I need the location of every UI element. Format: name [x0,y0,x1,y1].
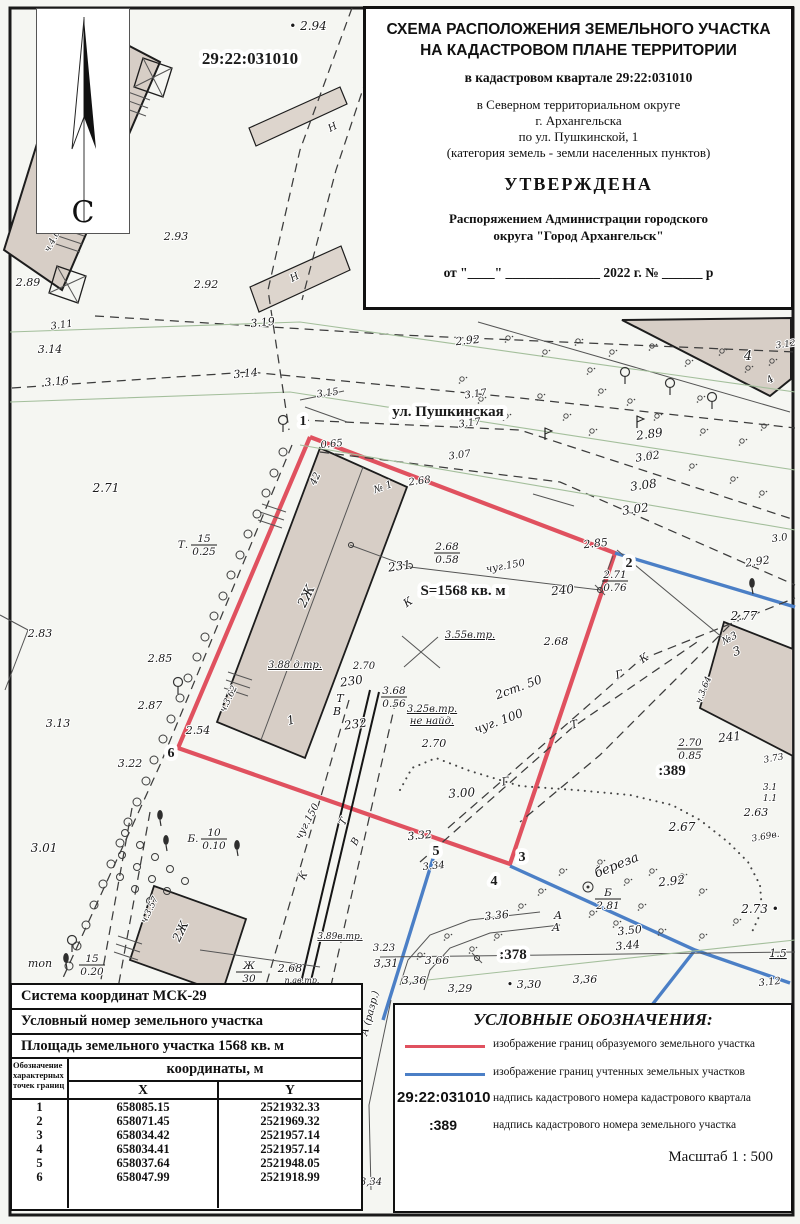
map-label: 2.70 [352,661,376,672]
bush-dot [512,336,514,338]
legend-quarter-number: 29:22:031010 [397,1089,489,1106]
bush-dot [620,921,622,923]
date-line: от "____" ______________ 2022 г. № _____… [366,265,791,281]
bush-dot [776,359,778,361]
map-label: 3.01 [31,841,58,855]
map-label: 2.77 [730,609,758,623]
fraction-bottom: 0.85 [678,750,702,762]
bush-dot [706,934,708,936]
fraction-top: 3.68 [382,685,406,697]
y-value: 2521957.14 [219,1128,361,1142]
map-label: • 3,30 [507,978,541,991]
y-header: Y [219,1082,361,1098]
point-number: 5 [12,1156,67,1170]
bush-dot [697,401,699,403]
map-label: :389 [658,763,686,779]
bush-dot [726,349,728,351]
fraction-bottom: 0.58 [435,554,459,566]
map-label: 1.5 [769,947,787,960]
bush-dot [616,350,618,352]
bush-dot [740,919,742,921]
fraction-prefix: Т. [178,539,188,551]
fraction-bottom: 0.76 [603,582,627,594]
map-label: 3.50 [617,923,643,938]
bush-dot [570,414,572,416]
map-label: 5 [433,844,440,859]
y-value: 2521918.99 [219,1170,361,1184]
bush-dot [505,341,507,343]
map-label: 2.93 [163,230,189,243]
bush-dot [538,894,540,896]
bush-dot [686,874,688,876]
xy-header-row: X Y [69,1082,361,1100]
legend-quarter-text: надпись кадастрового номера кадастрового… [493,1092,785,1104]
fraction-top: 10 [207,827,221,839]
bush-dot [656,344,658,346]
map-label: 3.25в.тр. [407,704,457,715]
point-number: 3 [12,1128,67,1142]
bush-dot [575,344,577,346]
bush-dot [658,934,660,936]
map-label: 3.22 [118,757,143,770]
fraction-top: 2.70 [677,737,702,749]
cadastral-scheme-page: • 2.9429:22:03101044442 ДЖч.4.002.892.93… [0,0,800,1224]
map-label: ул. Пушкинская [392,404,504,420]
bush-dot [739,444,741,446]
map-label: 3,31 [374,957,399,970]
bush-dot [587,373,589,375]
map-label: 3.66 [425,954,450,967]
bush-dot [609,355,611,357]
map-label: 4 [743,349,752,364]
map-label: 3,29 [448,982,473,995]
map-label: 241 [716,729,741,745]
bush-dot [699,939,701,941]
map-label: 3,34 [360,1177,382,1188]
bush-dot [537,399,539,401]
bush-dot [605,389,607,391]
map-label: 2.89 [15,276,41,289]
bush-dot [661,414,663,416]
map-label: В [332,705,341,718]
title-block: СХЕМА РАСПОЛОЖЕНИЯ ЗЕМЕЛЬНОГО УЧАСТКА НА… [363,6,794,310]
map-label: 2.85 [147,652,173,665]
map-label: 0.65 [320,438,343,451]
fraction-top: 2.71 [602,569,626,581]
x-value: 658071.45 [69,1114,217,1128]
map-label: 1.1 [763,794,777,804]
order-text: Распоряжением Администрации городского о… [366,210,791,244]
map-label: 2.83 [27,627,53,640]
map-label: 4 [491,874,498,889]
dark-tree-icon [157,810,163,820]
bush-dot [730,482,732,484]
map-label: 2.92 [454,333,481,349]
y-value: 2521932.33 [219,1100,361,1114]
dark-tree-icon [63,953,69,963]
point-number: 6 [12,1170,67,1184]
x-value: 658047.99 [69,1170,217,1184]
fraction-top: Б [603,887,612,899]
bush-dot [654,419,656,421]
bush-dot [469,952,471,954]
map-label: 3.55в.тр. [445,630,495,641]
y-values: 2521932.332521969.322521957.142521957.14… [219,1100,361,1208]
map-label: 6 [168,746,175,761]
bush-dot [768,424,770,426]
bush-dot [759,496,761,498]
fraction-prefix: Б. [186,833,198,845]
map-label: 2.73 • [740,902,779,916]
map-label: топ [28,957,52,970]
bush-dot [613,926,615,928]
map-label: 3.0 [771,532,789,545]
bush-dot [598,394,600,396]
map-label: 3.13 [46,717,71,730]
legend-blue-line-sample [405,1073,485,1076]
point-numbers: 123456 [12,1100,67,1184]
point-column-header: Обозначение характерных точек границ [12,1059,67,1100]
bush-dot [704,396,706,398]
bush-dot [594,368,596,370]
coordinates-table: Система координат МСК-29 Условный номер … [10,983,363,1211]
coord-grid: Обозначение характерных точек границ 123… [12,1059,361,1208]
legend-title: УСЛОВНЫЕ ОБОЗНАЧЕНИЯ: [395,1010,791,1030]
bush-dot [745,371,747,373]
map-label: не найд. [410,716,454,727]
bush-dot [451,934,453,936]
cond-number-row: Условный номер земельного участка [12,1010,361,1035]
legend-parcel-number: :389 [397,1117,489,1133]
map-label: 3.23 [373,943,395,954]
map-label: 2.87 [137,699,163,712]
bush-dot [501,934,503,936]
x-value: 658034.42 [69,1128,217,1142]
dark-tree-icon [163,835,169,845]
bush-dot [563,419,565,421]
legend-red-text: изображение границ образуемого земельног… [493,1038,785,1050]
north-arrow-box: С [36,8,130,234]
bush-dot [459,382,461,384]
bush-dot [510,414,512,416]
fraction-bottom: 0.20 [80,966,104,978]
bush-dot [604,860,606,862]
bush-dot [706,889,708,891]
fraction-top: 15 [197,533,211,545]
address-block: в Северном территориальном округе г. Арх… [366,97,791,161]
map-label: 2.71 [92,481,120,495]
bush-dot [559,874,561,876]
map-label: 3,36 [402,974,427,987]
bush-dot [525,904,527,906]
map-label: 3.14 [233,366,259,381]
bush-dot [689,469,691,471]
map-label: 3.32 [407,828,433,843]
bush-dot [476,947,478,949]
scale-label: Масштаб 1 : 500 [668,1149,773,1166]
coords-header: координаты, м [69,1059,361,1082]
map-label: 1 [300,414,307,429]
bush-dot [444,939,446,941]
bush-dot [761,429,763,431]
bush-dot [649,349,651,351]
coords-columns: координаты, м X Y 658085.15658071.456580… [69,1059,361,1208]
map-label: 3.88 д.тр. [268,660,322,671]
bush-dot [634,399,636,401]
bush-dot [631,879,633,881]
bush-dot [719,354,721,356]
quarter-line: в кадастровом квартале 29:22:031010 [366,70,791,86]
bush-dot [596,429,598,431]
map-label: 2.70 [421,737,447,750]
dark-tree-icon [749,578,755,588]
bush-dot [545,889,547,891]
legend-parcel-text: надпись кадастрового номера земельного у… [493,1119,785,1131]
fraction-top: Ж [242,960,256,972]
map-label: 3.19 [250,315,276,330]
bush-dot [692,360,694,362]
map-label: 2.92 [193,278,219,291]
y-value: 2521948.05 [219,1156,361,1170]
bush-dot [746,439,748,441]
bush-dot [544,394,546,396]
map-label: 3.44 [615,938,641,953]
map-label: 3,36 [573,973,598,986]
y-value: 2521969.32 [219,1114,361,1128]
x-value: 658034.41 [69,1142,217,1156]
approved-label: УТВЕРЖДЕНА [366,174,791,195]
bush-dot [582,339,584,341]
map-label: 2.67 [668,820,696,834]
fraction-bottom: 0.10 [202,840,226,852]
bush-dot [542,355,544,357]
point-number: 2 [12,1114,67,1128]
bush-dot [737,477,739,479]
x-value: 658037.64 [69,1156,217,1170]
bush-dot [707,429,709,431]
x-value: 658085.15 [69,1100,217,1114]
bush-dot [685,365,687,367]
circled-dot-center [587,886,590,889]
bush-dot [624,884,626,886]
bush-dot [566,869,568,871]
bush-dot [589,434,591,436]
bush-dot [417,958,419,960]
coords-data: 658085.15658071.45658034.42658034.416580… [69,1100,361,1208]
fraction-bottom: 0.25 [192,546,216,558]
bush-dot [518,909,520,911]
scheme-title: СХЕМА РАСПОЛОЖЕНИЯ ЗЕМЕЛЬНОГО УЧАСТКА НА… [366,19,791,61]
map-label: 2.63 [743,806,769,819]
bush-dot [656,869,658,871]
bush-dot [696,464,698,466]
area-row: Площадь земельного участка 1568 кв. м [12,1035,361,1059]
bush-dot [494,939,496,941]
fraction-bottom: 0.56 [382,698,406,710]
y-value: 2521957.14 [219,1142,361,1156]
point-number: 4 [12,1142,67,1156]
fraction-bottom: 2.81 [595,900,619,912]
bush-dot [752,366,754,368]
fraction-top: 15 [85,953,99,965]
bush-dot [769,364,771,366]
map-label: 240 [549,582,575,598]
coord-system-row: Система координат МСК-29 [12,985,361,1010]
bush-dot [589,916,591,918]
map-label: 3.16 [44,374,70,389]
bush-dot [638,909,640,911]
map-label: 2.92 [657,873,686,890]
bush-dot [699,894,701,896]
point-number: 1 [12,1100,67,1114]
map-label: • 2.94 [289,19,327,33]
legend-red-line-sample [405,1045,485,1048]
point-column: Обозначение характерных точек границ 123… [12,1059,69,1208]
map-label: 3.34 [422,860,445,873]
map-label: 3.14 [38,343,63,356]
north-letter: С [37,197,129,229]
bush-dot [665,929,667,931]
bush-dot [627,404,629,406]
dark-tree-icon [234,840,240,850]
bush-dot [733,924,735,926]
x-header: X [69,1082,219,1098]
bush-dot [700,434,702,436]
map-label: 29:22:031010 [202,49,298,68]
map-label: 3.36 [484,908,510,923]
bush-dot [649,874,651,876]
fraction-top: 2.68 [434,541,459,553]
map-label: 3.00 [448,785,476,801]
bush-dot [549,350,551,352]
x-values: 658085.15658071.45658034.42658034.416580… [69,1100,219,1208]
map-label: 3.89в.тр. [317,932,362,942]
map-label: 3.12 [758,976,781,989]
map-label: 3.1 [763,783,777,793]
map-label: 2.68 [543,635,569,648]
map-label: :378 [499,947,527,963]
map-label: 2.54 [185,724,211,737]
map-label: 3 [519,850,526,865]
map-label: S=1568 кв. м [420,583,505,599]
bush-dot [766,491,768,493]
legend-blue-text: изображение границ учтенных земельных уч… [493,1066,785,1078]
map-label: 2.85 [582,536,609,552]
legend: УСЛОВНЫЕ ОБОЗНАЧЕНИЯ: изображение границ… [393,1003,793,1213]
bush-dot [466,377,468,379]
map-label: А [551,921,560,934]
map-label: 2.68 [277,962,303,975]
bush-dot [645,904,647,906]
